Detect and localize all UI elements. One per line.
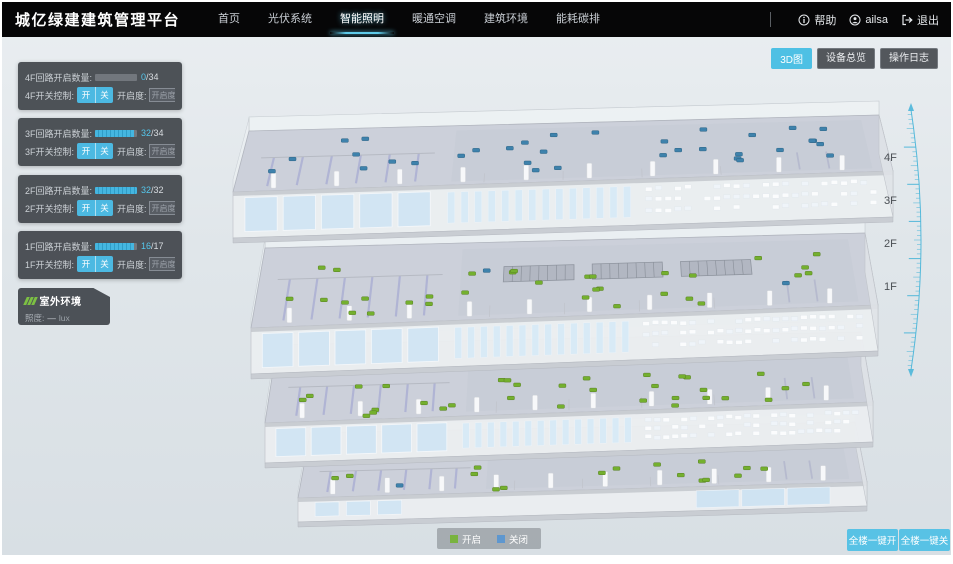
dim-input[interactable] — [149, 201, 175, 215]
circuit-count-value: 16/17 — [141, 241, 164, 251]
help-button[interactable]: 帮助 — [798, 12, 836, 28]
whole-building-actions: 全楼一键开 全楼一键关 — [847, 529, 950, 551]
outdoor-env-icon — [25, 297, 36, 305]
outdoor-env-title: 室外环境 — [40, 293, 82, 308]
switch-off-button[interactable]: 关 — [95, 87, 113, 103]
dim-input[interactable] — [149, 257, 175, 271]
app-root: 城亿绿建建筑管理平台 首页 光伏系统 智能照明 暖通空调 建筑环境 能耗碳排 帮… — [2, 2, 951, 555]
switch-off-button[interactable]: 关 — [95, 200, 113, 216]
all-on-button[interactable]: 全楼一键开 — [847, 529, 898, 551]
operation-log-button[interactable]: 操作日志 — [880, 48, 938, 69]
floor-label-4f[interactable]: 4F — [884, 152, 906, 164]
floor-panel-4f: 4F回路开启数量: 0/34 4F开关控制: 开 关 开启度: % — [18, 62, 182, 110]
circuit-count-label: 1F回路开启数量: — [25, 240, 92, 253]
dim-label: 开启度: — [117, 202, 147, 215]
main-nav: 首页 光伏系统 智能照明 暖通空调 建筑环境 能耗碳排 — [204, 2, 614, 37]
switch-off-button[interactable]: 关 — [95, 143, 113, 159]
illuminance-unit: lux — [59, 313, 70, 323]
floor-label-2f[interactable]: 2F — [884, 238, 906, 250]
circuit-progress-bar — [95, 187, 137, 194]
floor-panel-3f: 3F回路开启数量: 32/34 3F开关控制: 开 关 开启度: % — [18, 118, 182, 166]
nav-energy-carbon[interactable]: 能耗碳排 — [542, 2, 614, 37]
switch-control-label: 4F开关控制: — [25, 89, 74, 102]
circuit-count-label: 3F回路开启数量: — [25, 127, 92, 140]
switch-off-button[interactable]: 关 — [95, 256, 113, 272]
circuit-progress-bar — [95, 74, 137, 81]
switch-control-label: 2F开关控制: — [25, 202, 74, 215]
dim-input[interactable] — [149, 144, 175, 158]
dim-label: 开启度: — [117, 258, 147, 271]
legend-on-label: 开启 — [462, 532, 481, 546]
legend-on-swatch — [450, 535, 458, 543]
divider — [770, 12, 771, 27]
top-bar: 城亿绿建建筑管理平台 首页 光伏系统 智能照明 暖通空调 建筑环境 能耗碳排 帮… — [2, 2, 951, 37]
view-3d-button[interactable]: 3D图 — [771, 48, 812, 69]
legend-off-swatch — [497, 535, 505, 543]
username: ailsa — [865, 14, 888, 26]
logout-button[interactable]: 退出 — [901, 12, 939, 28]
circuit-progress-bar — [95, 130, 137, 137]
view-toolbar: 3D图 设备总览 操作日志 — [771, 48, 938, 69]
dim-label: 开启度: — [117, 89, 147, 102]
user-icon — [849, 14, 861, 26]
lights-legend: 开启 关闭 — [437, 528, 541, 549]
building-3d-view[interactable] — [215, 95, 905, 535]
switch-control-label: 3F开关控制: — [25, 145, 74, 158]
user-account[interactable]: ailsa — [849, 14, 888, 26]
all-off-button[interactable]: 全楼一键关 — [899, 529, 950, 551]
logout-icon — [901, 14, 913, 26]
nav-home[interactable]: 首页 — [204, 2, 254, 37]
circuit-count-label: 2F回路开启数量: — [25, 184, 92, 197]
nav-hvac[interactable]: 暖通空调 — [398, 2, 470, 37]
dim-input[interactable] — [149, 88, 175, 102]
help-icon — [798, 14, 810, 26]
device-overview-button[interactable]: 设备总览 — [817, 48, 875, 69]
circuit-count-label: 4F回路开启数量: — [25, 71, 92, 84]
circuit-count-value: 32/32 — [141, 185, 164, 195]
floor-label-3f[interactable]: 3F — [884, 195, 906, 207]
platform-title: 城亿绿建建筑管理平台 — [15, 9, 180, 30]
floor-panel-1f: 1F回路开启数量: 16/17 1F开关控制: 开 关 开启度: % — [18, 231, 182, 279]
nav-building-env[interactable]: 建筑环境 — [470, 2, 542, 37]
floor-label-1f[interactable]: 1F — [884, 281, 906, 293]
circuit-count-value: 0/34 — [141, 72, 159, 82]
dim-label: 开启度: — [117, 145, 147, 158]
circuit-count-value: 32/34 — [141, 128, 164, 138]
switch-on-button[interactable]: 开 — [77, 143, 95, 159]
nav-pv-system[interactable]: 光伏系统 — [254, 2, 326, 37]
switch-on-button[interactable]: 开 — [77, 200, 95, 216]
switch-on-button[interactable]: 开 — [77, 256, 95, 272]
switch-on-button[interactable]: 开 — [77, 87, 95, 103]
switch-control-label: 1F开关控制: — [25, 258, 74, 271]
circuit-progress-bar — [95, 243, 137, 250]
illuminance-value: — — [47, 313, 56, 323]
legend-off-label: 关闭 — [509, 532, 528, 546]
illuminance-label: 照度: — [25, 312, 44, 324]
user-area: 帮助 ailsa 退出 — [770, 12, 939, 28]
floor-panel-2f: 2F回路开启数量: 32/32 2F开关控制: 开 关 开启度: % — [18, 175, 182, 223]
nav-smart-lighting[interactable]: 智能照明 — [326, 2, 398, 37]
outdoor-env-panel: 室外环境 照度: — lux — [18, 288, 110, 325]
